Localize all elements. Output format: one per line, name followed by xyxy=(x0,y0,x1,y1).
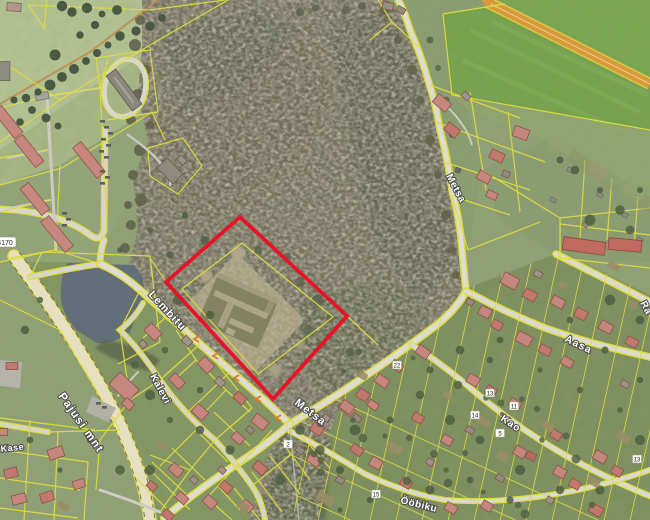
svg-text:22: 22 xyxy=(394,364,401,370)
svg-text:14: 14 xyxy=(472,414,479,420)
svg-text:4170: 4170 xyxy=(0,240,13,247)
svg-text:11: 11 xyxy=(511,405,518,411)
svg-text:15: 15 xyxy=(373,493,380,499)
svg-text:13: 13 xyxy=(634,458,641,464)
svg-text:13: 13 xyxy=(487,392,494,398)
